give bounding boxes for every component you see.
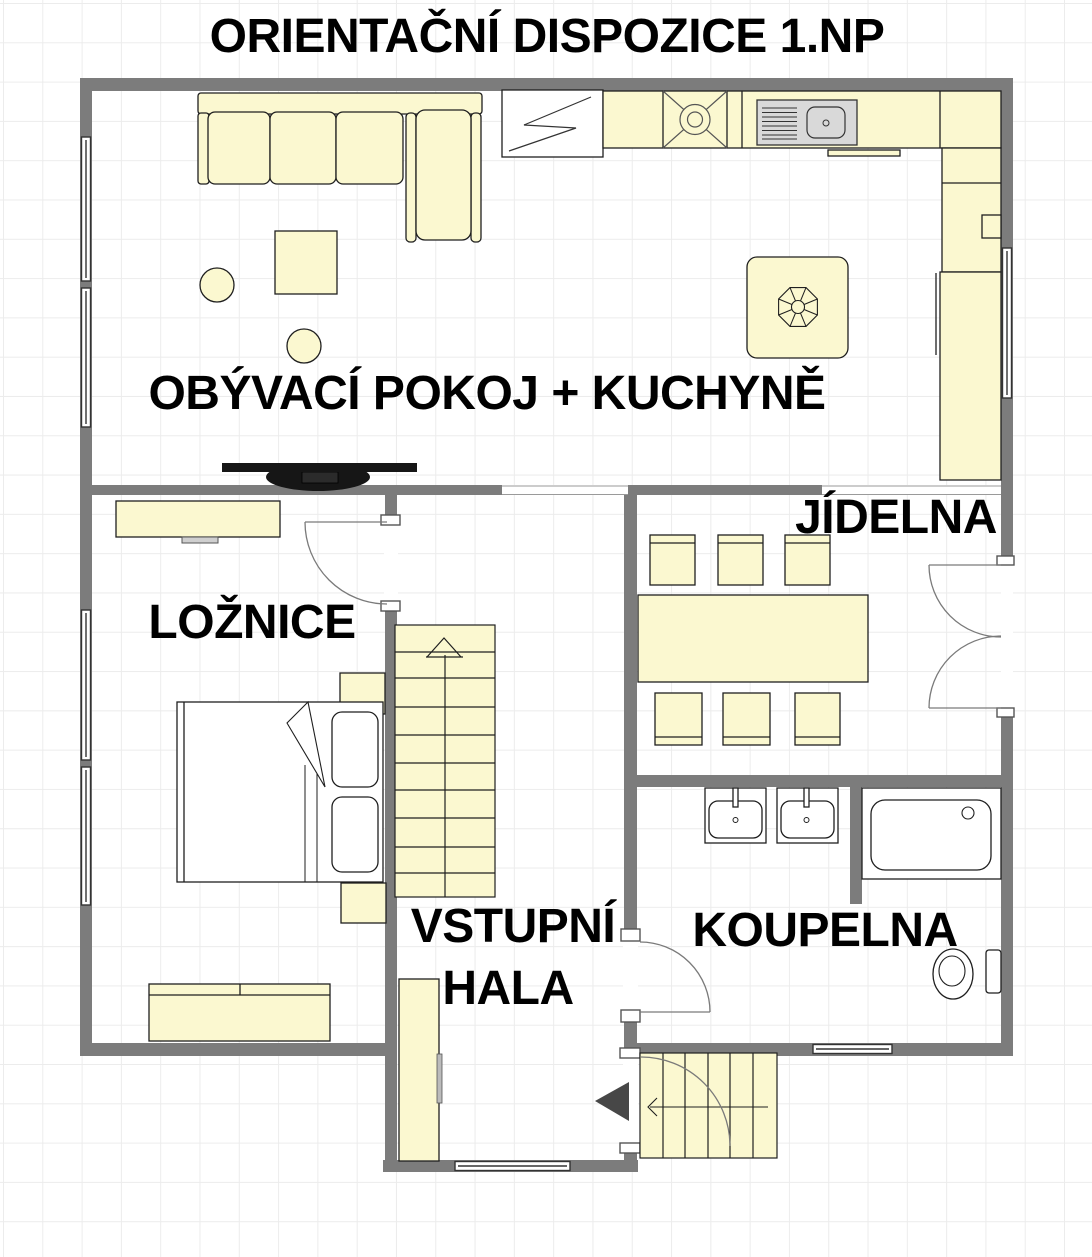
window-bedroom-left-1 — [82, 610, 91, 760]
window-living-left-2 — [82, 288, 91, 427]
pouf-2 — [287, 329, 321, 363]
wall-bath-partition — [850, 787, 862, 904]
chair — [795, 693, 840, 745]
jamb — [620, 1048, 640, 1058]
fridge — [502, 90, 603, 157]
entry-direction-triangle-icon — [595, 1082, 629, 1121]
bed — [177, 702, 383, 882]
pillow — [332, 797, 378, 872]
jamb — [620, 1143, 640, 1153]
jamb — [381, 601, 400, 611]
room-label-living-kitchen: OBÝVACÍ POKOJ + KUCHYNĚ — [148, 370, 825, 418]
bathroom-sink-2 — [777, 788, 838, 843]
window-hall-bottom — [455, 1162, 570, 1171]
bathtub — [862, 788, 1001, 879]
wall-dining-left — [624, 485, 637, 775]
jamb — [997, 556, 1014, 565]
room-label-bathroom: KOUPELNA — [692, 907, 957, 955]
kitchen-island — [747, 257, 848, 358]
wall-top — [80, 78, 1013, 91]
wall-bedroom-bottom — [80, 1043, 397, 1056]
dresser — [149, 984, 330, 1041]
jamb — [381, 515, 400, 525]
tall-cabinet — [940, 272, 1001, 480]
door-bedroom — [305, 522, 387, 604]
nightstand-2 — [341, 883, 386, 923]
kitchen-sink — [757, 100, 857, 145]
wall-bathroom-top — [624, 775, 1013, 787]
jamb — [621, 1010, 640, 1022]
chair — [723, 693, 770, 745]
window-kitchen-right — [1003, 248, 1012, 398]
window-bedroom-left-2 — [82, 767, 91, 905]
plan-title: ORIENTAČNÍ DISPOZICE 1.NP — [210, 13, 885, 61]
window-living-left-1 — [82, 137, 91, 281]
pillow — [332, 712, 378, 787]
chair — [718, 535, 763, 585]
room-label-hall-line1: VSTUPNÍ — [411, 903, 616, 951]
entry-steps — [640, 1053, 777, 1158]
dining-set — [638, 535, 868, 745]
coffee-table — [275, 231, 337, 294]
jamb — [997, 708, 1014, 717]
wall-dining-top — [628, 485, 822, 495]
desk — [116, 501, 280, 543]
dining-table — [638, 595, 868, 682]
staircase — [395, 625, 495, 897]
window-bathroom-bottom — [813, 1045, 892, 1054]
pouf-1 — [200, 268, 234, 302]
room-label-dining: JÍDELNA — [795, 494, 997, 542]
chair — [655, 693, 702, 745]
chair — [650, 535, 695, 585]
room-label-bedroom: LOŽNICE — [148, 599, 355, 647]
sofa — [198, 93, 482, 242]
hall-wardrobe — [399, 979, 442, 1161]
floor-plan-canvas: ORIENTAČNÍ DISPOZICE 1.NP OBÝVACÍ POKOJ … — [0, 0, 1092, 1257]
door-french-dining — [929, 565, 1001, 708]
jamb — [621, 929, 640, 941]
bathroom-sink-1 — [705, 788, 766, 843]
wall-bedroom-hall — [385, 495, 397, 517]
room-label-hall-line2: HALA — [442, 965, 573, 1013]
